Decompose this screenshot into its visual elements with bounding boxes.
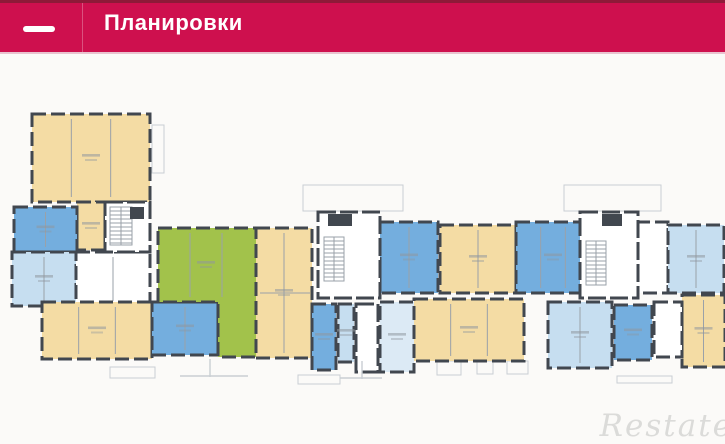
page-title: Планировки [104, 10, 243, 36]
room-label-mark [627, 334, 639, 336]
room-label-mark [690, 260, 702, 262]
elevator-shaft [328, 214, 352, 226]
balcony-outline [477, 361, 493, 374]
room-label-mark [547, 259, 559, 261]
rooms-white-right-1 [636, 222, 668, 293]
room-label-mark [687, 255, 705, 258]
room-label-mark [318, 338, 330, 340]
room-label-mark [403, 259, 415, 261]
room-label-mark [469, 255, 487, 258]
room-label-mark [695, 327, 713, 330]
minus-icon[interactable] [22, 18, 56, 40]
room-label-mark [40, 231, 52, 233]
room-label-mark [82, 154, 100, 157]
room-label-mark [82, 222, 100, 225]
balcony-outline [303, 185, 403, 211]
room-label-mark [176, 325, 194, 328]
balcony-outline [298, 375, 340, 384]
room-label-mark [544, 254, 562, 257]
room-label-mark [85, 159, 97, 161]
room-label-mark [91, 332, 103, 334]
header-divider [82, 3, 83, 52]
room-label-mark [624, 329, 642, 332]
apartment-blue-4 [614, 305, 652, 360]
room-label-mark [278, 294, 290, 296]
room-label-mark [388, 333, 406, 336]
room-label-mark [574, 336, 586, 338]
apartment-beige-a [32, 114, 150, 202]
apartment-lightblue-5 [338, 304, 354, 362]
elevator-shaft [602, 214, 622, 226]
room-label-mark [38, 280, 50, 282]
room-label-mark [179, 330, 191, 332]
apartment-paleblue-1 [380, 302, 414, 372]
apartment-blue-6 [312, 304, 336, 370]
app-header: Планировки [0, 0, 725, 54]
entrance-lobby [356, 304, 378, 372]
room-label-mark [571, 331, 589, 334]
room-label-mark [391, 338, 403, 340]
room-label-mark [337, 329, 355, 332]
room-label-mark [275, 289, 293, 292]
room-label-mark [35, 275, 53, 278]
content-area: Restate [0, 59, 725, 444]
balcony-outline [617, 376, 672, 383]
room-label-mark [698, 332, 710, 334]
apartment-beige-d [42, 302, 152, 359]
room-label-mark [88, 327, 106, 330]
watermark: Restate [600, 408, 725, 444]
balcony-outline [437, 361, 461, 375]
apartment-beige-6 [414, 299, 524, 361]
room-label-mark [340, 334, 352, 336]
apartment-beige-a2 [77, 202, 105, 250]
room-label-mark [400, 254, 418, 257]
room-label-mark [37, 226, 55, 229]
room-label-mark [85, 227, 97, 229]
room-label-mark [315, 333, 333, 336]
elevator-shaft [130, 207, 144, 219]
room-label-mark [197, 261, 215, 264]
floor-plan [10, 95, 725, 400]
balcony-outline [110, 367, 155, 378]
balcony-outline [564, 185, 661, 211]
room-label-mark [463, 331, 475, 333]
room-label-mark [200, 266, 212, 268]
room-label-mark [460, 326, 478, 329]
floor-plan-svg [10, 95, 725, 400]
rooms-white-right-2 [654, 302, 682, 357]
room-label-mark [472, 260, 484, 262]
balcony-outline [507, 361, 528, 374]
balcony-outline [152, 125, 164, 173]
